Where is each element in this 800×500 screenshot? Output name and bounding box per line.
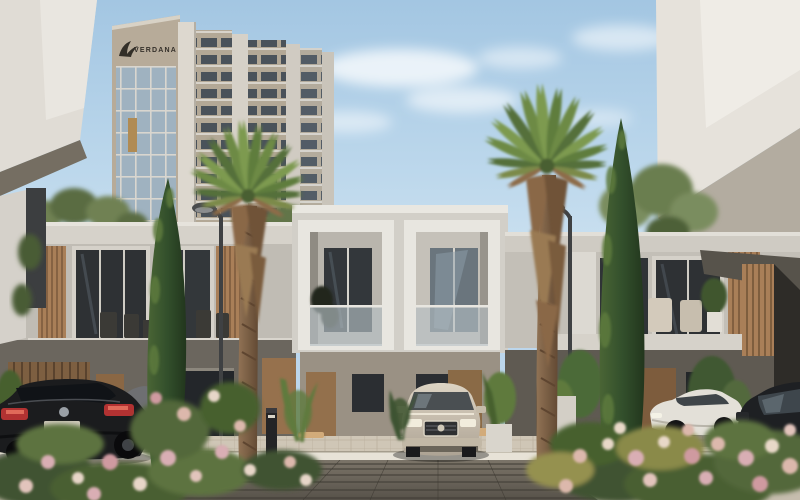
glass-balustrade xyxy=(416,306,488,346)
flower-bed-right xyxy=(526,420,800,500)
glass-balustrade xyxy=(310,306,382,346)
wheel xyxy=(406,447,420,457)
side-mirror xyxy=(736,412,749,421)
wheel xyxy=(462,447,476,457)
balcony-box-right xyxy=(404,220,500,350)
potted-plant xyxy=(701,278,727,314)
white-planter xyxy=(486,424,512,452)
side-mirror xyxy=(476,406,486,413)
headlight xyxy=(460,419,476,427)
balcony-box-left xyxy=(298,220,394,350)
ground-window xyxy=(352,374,384,412)
render-canvas: VERDANA xyxy=(0,0,800,500)
headlight xyxy=(651,413,662,418)
brand-badge xyxy=(59,407,69,417)
brand-badge xyxy=(438,425,445,432)
scene-render: VERDANA xyxy=(0,0,800,500)
tower-logo-text: VERDANA xyxy=(134,47,177,54)
tower-pier xyxy=(178,22,196,232)
